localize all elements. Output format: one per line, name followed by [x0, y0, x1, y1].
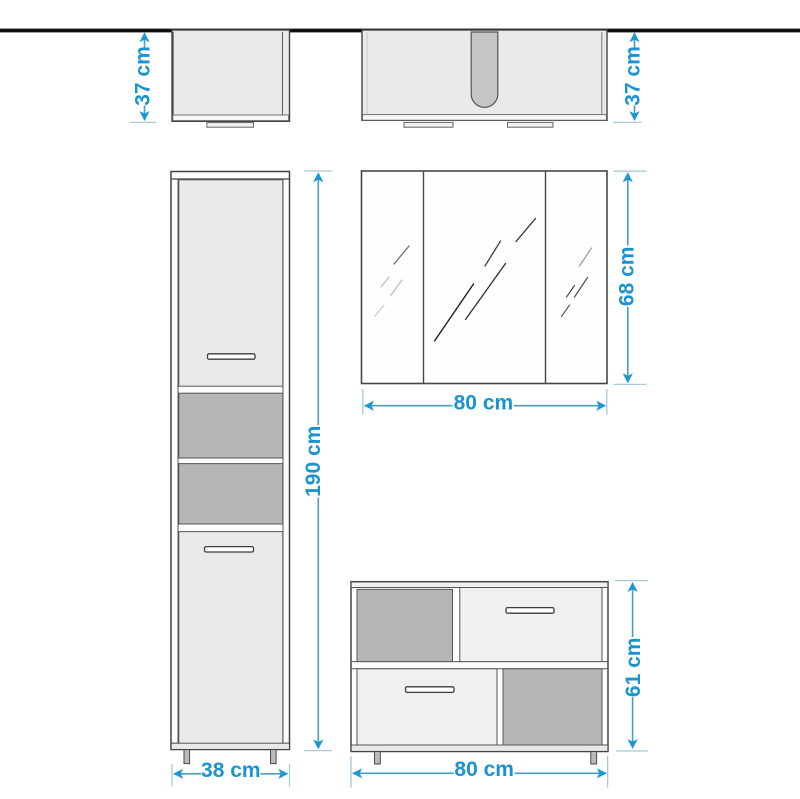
- svg-text:37 cm: 37 cm: [132, 46, 155, 106]
- svg-text:38 cm: 38 cm: [201, 759, 261, 782]
- svg-text:68 cm: 68 cm: [616, 247, 639, 307]
- svg-text:80 cm: 80 cm: [454, 758, 514, 781]
- svg-text:80 cm: 80 cm: [454, 392, 514, 415]
- svg-text:61 cm: 61 cm: [622, 638, 645, 698]
- svg-text:190 cm: 190 cm: [302, 426, 325, 497]
- svg-text:37 cm: 37 cm: [622, 46, 645, 106]
